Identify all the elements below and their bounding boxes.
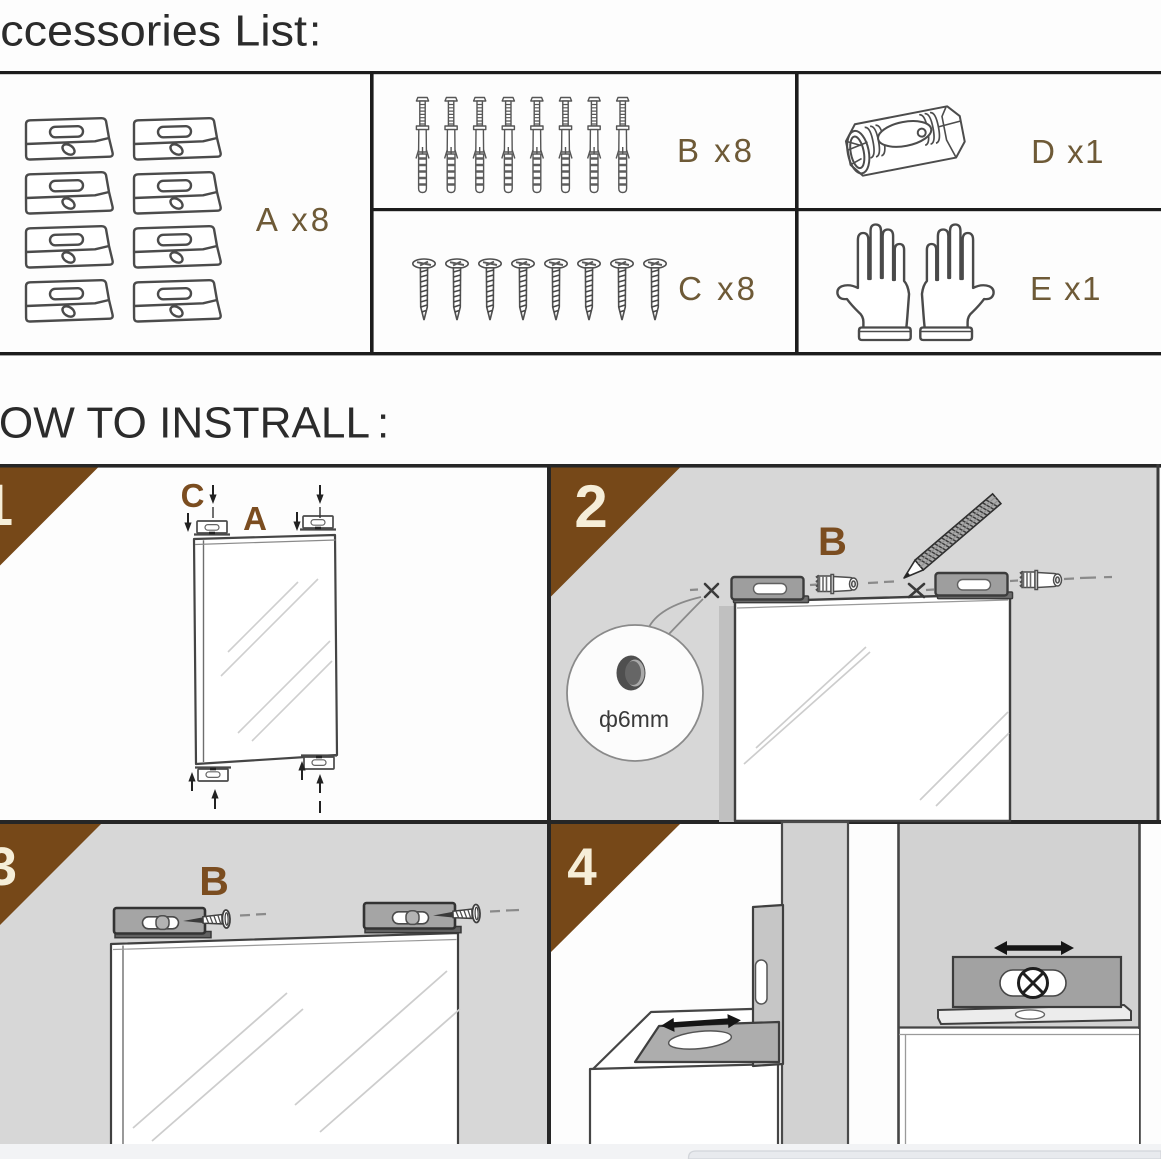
svg-text:B: B [199,858,229,904]
svg-text:C: C [181,477,205,514]
svg-text:B: B [818,520,847,564]
svg-text:C x8: C x8 [678,270,758,307]
svg-text::: : [309,7,321,56]
svg-text:3: 3 [0,837,17,897]
svg-text:1: 1 [0,473,13,538]
svg-text:A: A [243,500,267,537]
svg-text:B x8: B x8 [677,132,755,169]
svg-text:E x1: E x1 [1030,270,1102,307]
svg-text::: : [377,399,389,448]
svg-text:ф6mm: ф6mm [599,706,669,732]
svg-text:Accessories List: Accessories List [0,7,307,56]
svg-text:A x8: A x8 [256,201,332,238]
svg-text:2: 2 [574,473,607,540]
svg-text:D x1: D x1 [1031,133,1105,170]
svg-text:HOW TO INSTRALL: HOW TO INSTRALL [0,399,370,448]
svg-text:4: 4 [567,838,597,897]
